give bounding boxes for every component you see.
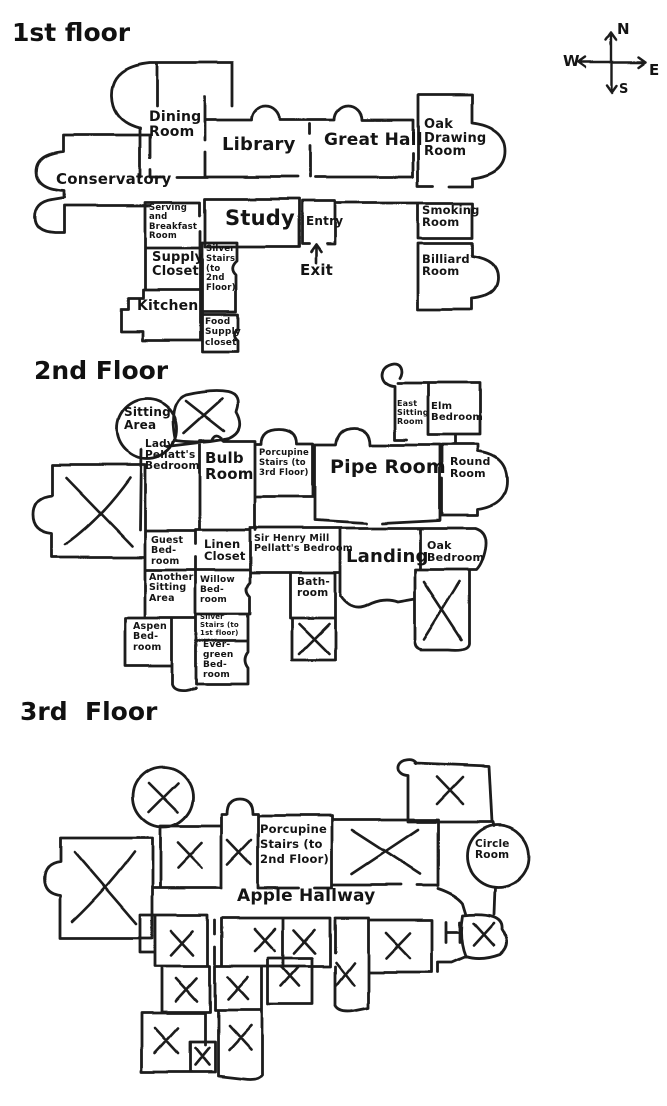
room-label-bulb: Bulb Room [205, 451, 254, 483]
room-label-guest: Guest Bed- room [151, 536, 183, 567]
room-label-conservatory: Conservatory [56, 172, 171, 188]
room-label-round: Round Room [450, 456, 491, 479]
room-label-linen: Linen Closet [204, 538, 246, 562]
floor3-title: 3rd Floor [20, 697, 157, 726]
compass-label-west: W [563, 54, 580, 70]
room-label-study: Study [225, 207, 295, 229]
floor2-title: 2nd Floor [34, 356, 168, 385]
room-label-silver-stairs-up: Silver Stairs (to 2nd Floor) [206, 245, 236, 294]
room-label-porcupine-stairs-down: Porcupine Stairs (to 2nd Floor) [260, 822, 329, 867]
room-label-dining: Dining Room [149, 110, 201, 139]
room-label-porcupine-stairs-up: Porcupine Stairs (to 3rd Floor) [259, 449, 309, 478]
room-label-supply-closet: Supply Closet [152, 251, 203, 278]
room-label-apple-hallway: Apple Hallway [237, 888, 375, 906]
room-label-library: Library [222, 136, 296, 155]
room-label-circle: Circle Room [475, 839, 510, 861]
floor3-walls [44, 760, 529, 1080]
room-label-bath: Bath- room [297, 577, 330, 599]
compass-label-south: S [619, 83, 629, 97]
room-label-elm: Elm Bedroom [431, 402, 483, 423]
room-label-serving-breakfast: Serving and Breakfast Room [149, 204, 197, 241]
floor-plan-page: 1st floor 2nd Floor 3rd Floor N W E S Co… [0, 0, 667, 1106]
room-label-another-sitting: Another Sitting Area [149, 573, 193, 604]
room-label-evergreen: Ever- green Bed- room [203, 641, 234, 681]
room-label-lady-pellatts: Lady Pellatt's Bedroom [145, 439, 200, 472]
floor2-x-marks [66, 399, 462, 654]
exit-label: Exit [300, 263, 333, 279]
room-label-silver-stairs-down: Silver Stairs (to 1st floor) [200, 613, 239, 637]
room-label-sitting-area: Sitting Area [124, 406, 171, 431]
compass-label-east: E [649, 63, 659, 79]
compass-rose [579, 33, 646, 92]
room-label-sir-henry: Sir Henry Mill Pellatt's Bedroom [254, 534, 353, 554]
room-label-oak-drawing: Oak Drawing Room [424, 118, 486, 159]
room-label-east-sitting: East Sitting Room [397, 400, 429, 426]
room-label-willow: Willow Bed- room [200, 576, 235, 606]
room-label-kitchen: Kitchen [137, 299, 198, 314]
room-label-smoking: Smoking Room [422, 204, 480, 228]
room-label-oak: Oak Bedroom [427, 540, 484, 563]
room-label-aspen: Aspen Bed- room [133, 622, 167, 653]
room-label-landing: Landing [346, 548, 429, 567]
room-label-food-supply: Food Supply closet [205, 317, 241, 348]
compass-label-north: N [617, 22, 630, 38]
room-label-entry: Entry [306, 215, 343, 228]
room-label-pipe: Pipe Room [330, 458, 446, 478]
room-label-billiard: Billiard Room [422, 253, 470, 277]
room-label-great-hall: Great Hall [324, 132, 423, 150]
floor1-title: 1st floor [12, 18, 130, 47]
